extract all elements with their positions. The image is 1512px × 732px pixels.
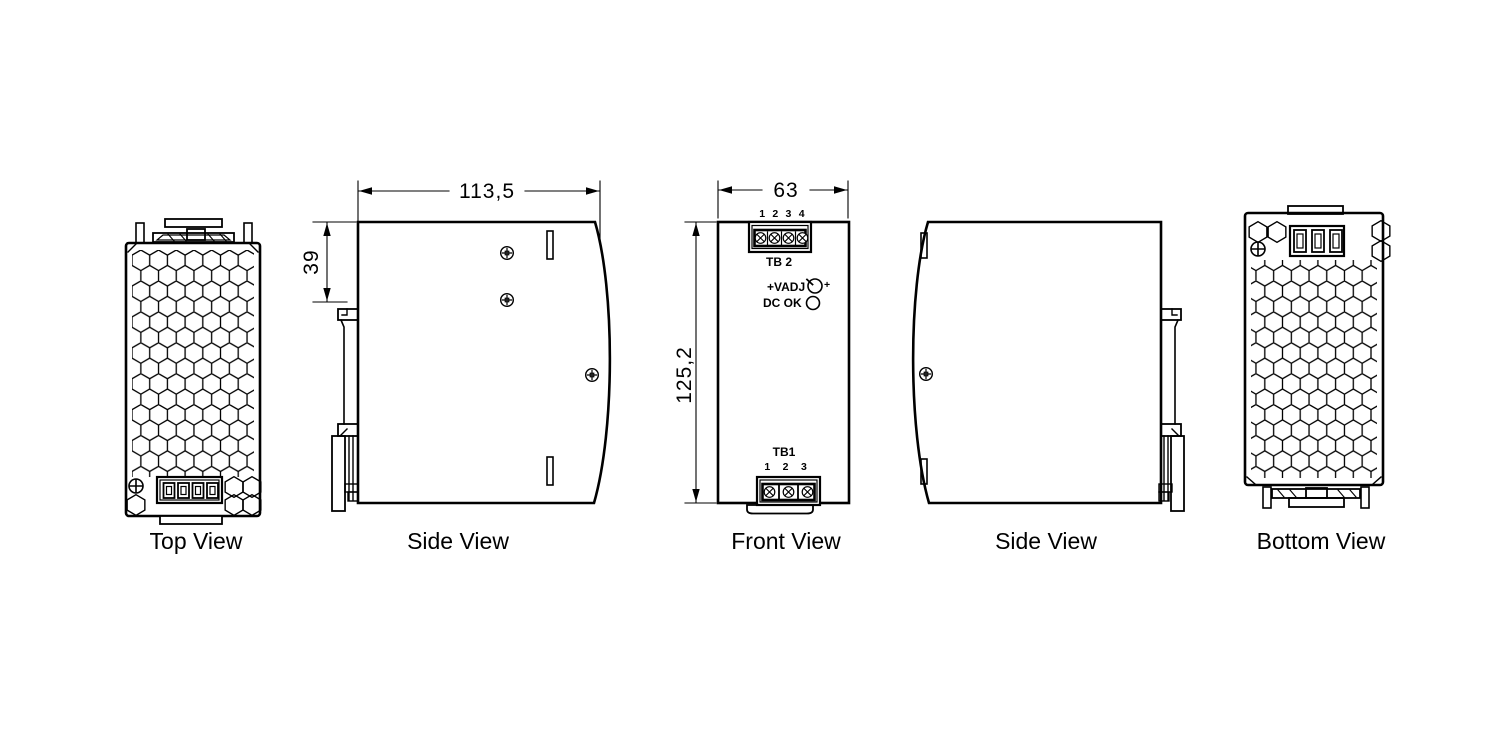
vadj-plus-sign: + [824, 279, 830, 291]
hex-cells [225, 477, 261, 516]
top-view: Top View [126, 219, 261, 554]
tb1-pin-numbers: 1 2 3 [764, 461, 811, 473]
dim-63-label: 63 [773, 179, 798, 202]
tb2-label: TB 2 [766, 255, 792, 269]
tb1-terminal-block [757, 477, 820, 505]
dim-125-2-label: 125,2 [673, 346, 696, 404]
tb2-pin-numbers: 1 2 3 4 [759, 208, 807, 220]
screw-icon [1251, 242, 1265, 256]
tb1-label: TB1 [773, 445, 796, 459]
terminal-screw-icon [802, 487, 813, 498]
drawing-canvas: Top View 113,5 39 [0, 0, 1512, 732]
dim-113-5-label: 113,5 [459, 180, 515, 203]
side-view-right-caption: Side View [995, 528, 1097, 554]
screw-icon [920, 368, 933, 381]
screw-icon [501, 247, 514, 260]
side-view-right: Side View [913, 222, 1184, 554]
dim-39-label: 39 [300, 249, 323, 274]
vent-grille [1251, 260, 1377, 478]
input-connector [1290, 226, 1344, 256]
front-view-caption: Front View [731, 528, 841, 554]
screw-icon [586, 369, 599, 382]
din-clip-profile [332, 309, 358, 511]
terminal-screw-icon [797, 233, 808, 244]
hex-cell [127, 495, 145, 516]
side-body [913, 222, 1161, 503]
dcok-label: DC OK [763, 296, 802, 310]
din-clip-profile [1159, 309, 1184, 511]
terminal-screw-icon [764, 487, 775, 498]
din-clip-bottom-icon [1263, 487, 1369, 508]
output-connector [157, 477, 222, 503]
din-clip-top-icon [136, 219, 252, 243]
bottom-view: Bottom View [1245, 206, 1390, 554]
side-view-left: 113,5 39 [300, 180, 610, 554]
front-view: 63 125,2 1 2 3 4 [673, 179, 849, 554]
screw-icon [501, 294, 514, 307]
mechanical-drawing: Top View 113,5 39 [0, 0, 1512, 732]
dim-39: 39 [300, 222, 356, 302]
top-view-caption: Top View [150, 528, 243, 554]
mounting-tab [160, 516, 222, 524]
dim-125-2: 125,2 [673, 222, 716, 503]
vadj-label: +VADJ [767, 280, 805, 294]
terminal-screw-icon [769, 233, 780, 244]
side-view-left-caption: Side View [407, 528, 509, 554]
tb2-terminal-block [749, 222, 811, 252]
terminal-screw-icon [783, 233, 794, 244]
bottom-view-caption: Bottom View [1257, 528, 1386, 554]
screw-icon [129, 479, 143, 493]
terminal-screw-icon [755, 233, 766, 244]
terminal-screw-icon [783, 487, 794, 498]
vent-grille [132, 250, 254, 477]
side-body [358, 222, 610, 503]
corner-chamfer [1247, 477, 1381, 484]
mounting-tab [747, 505, 813, 514]
